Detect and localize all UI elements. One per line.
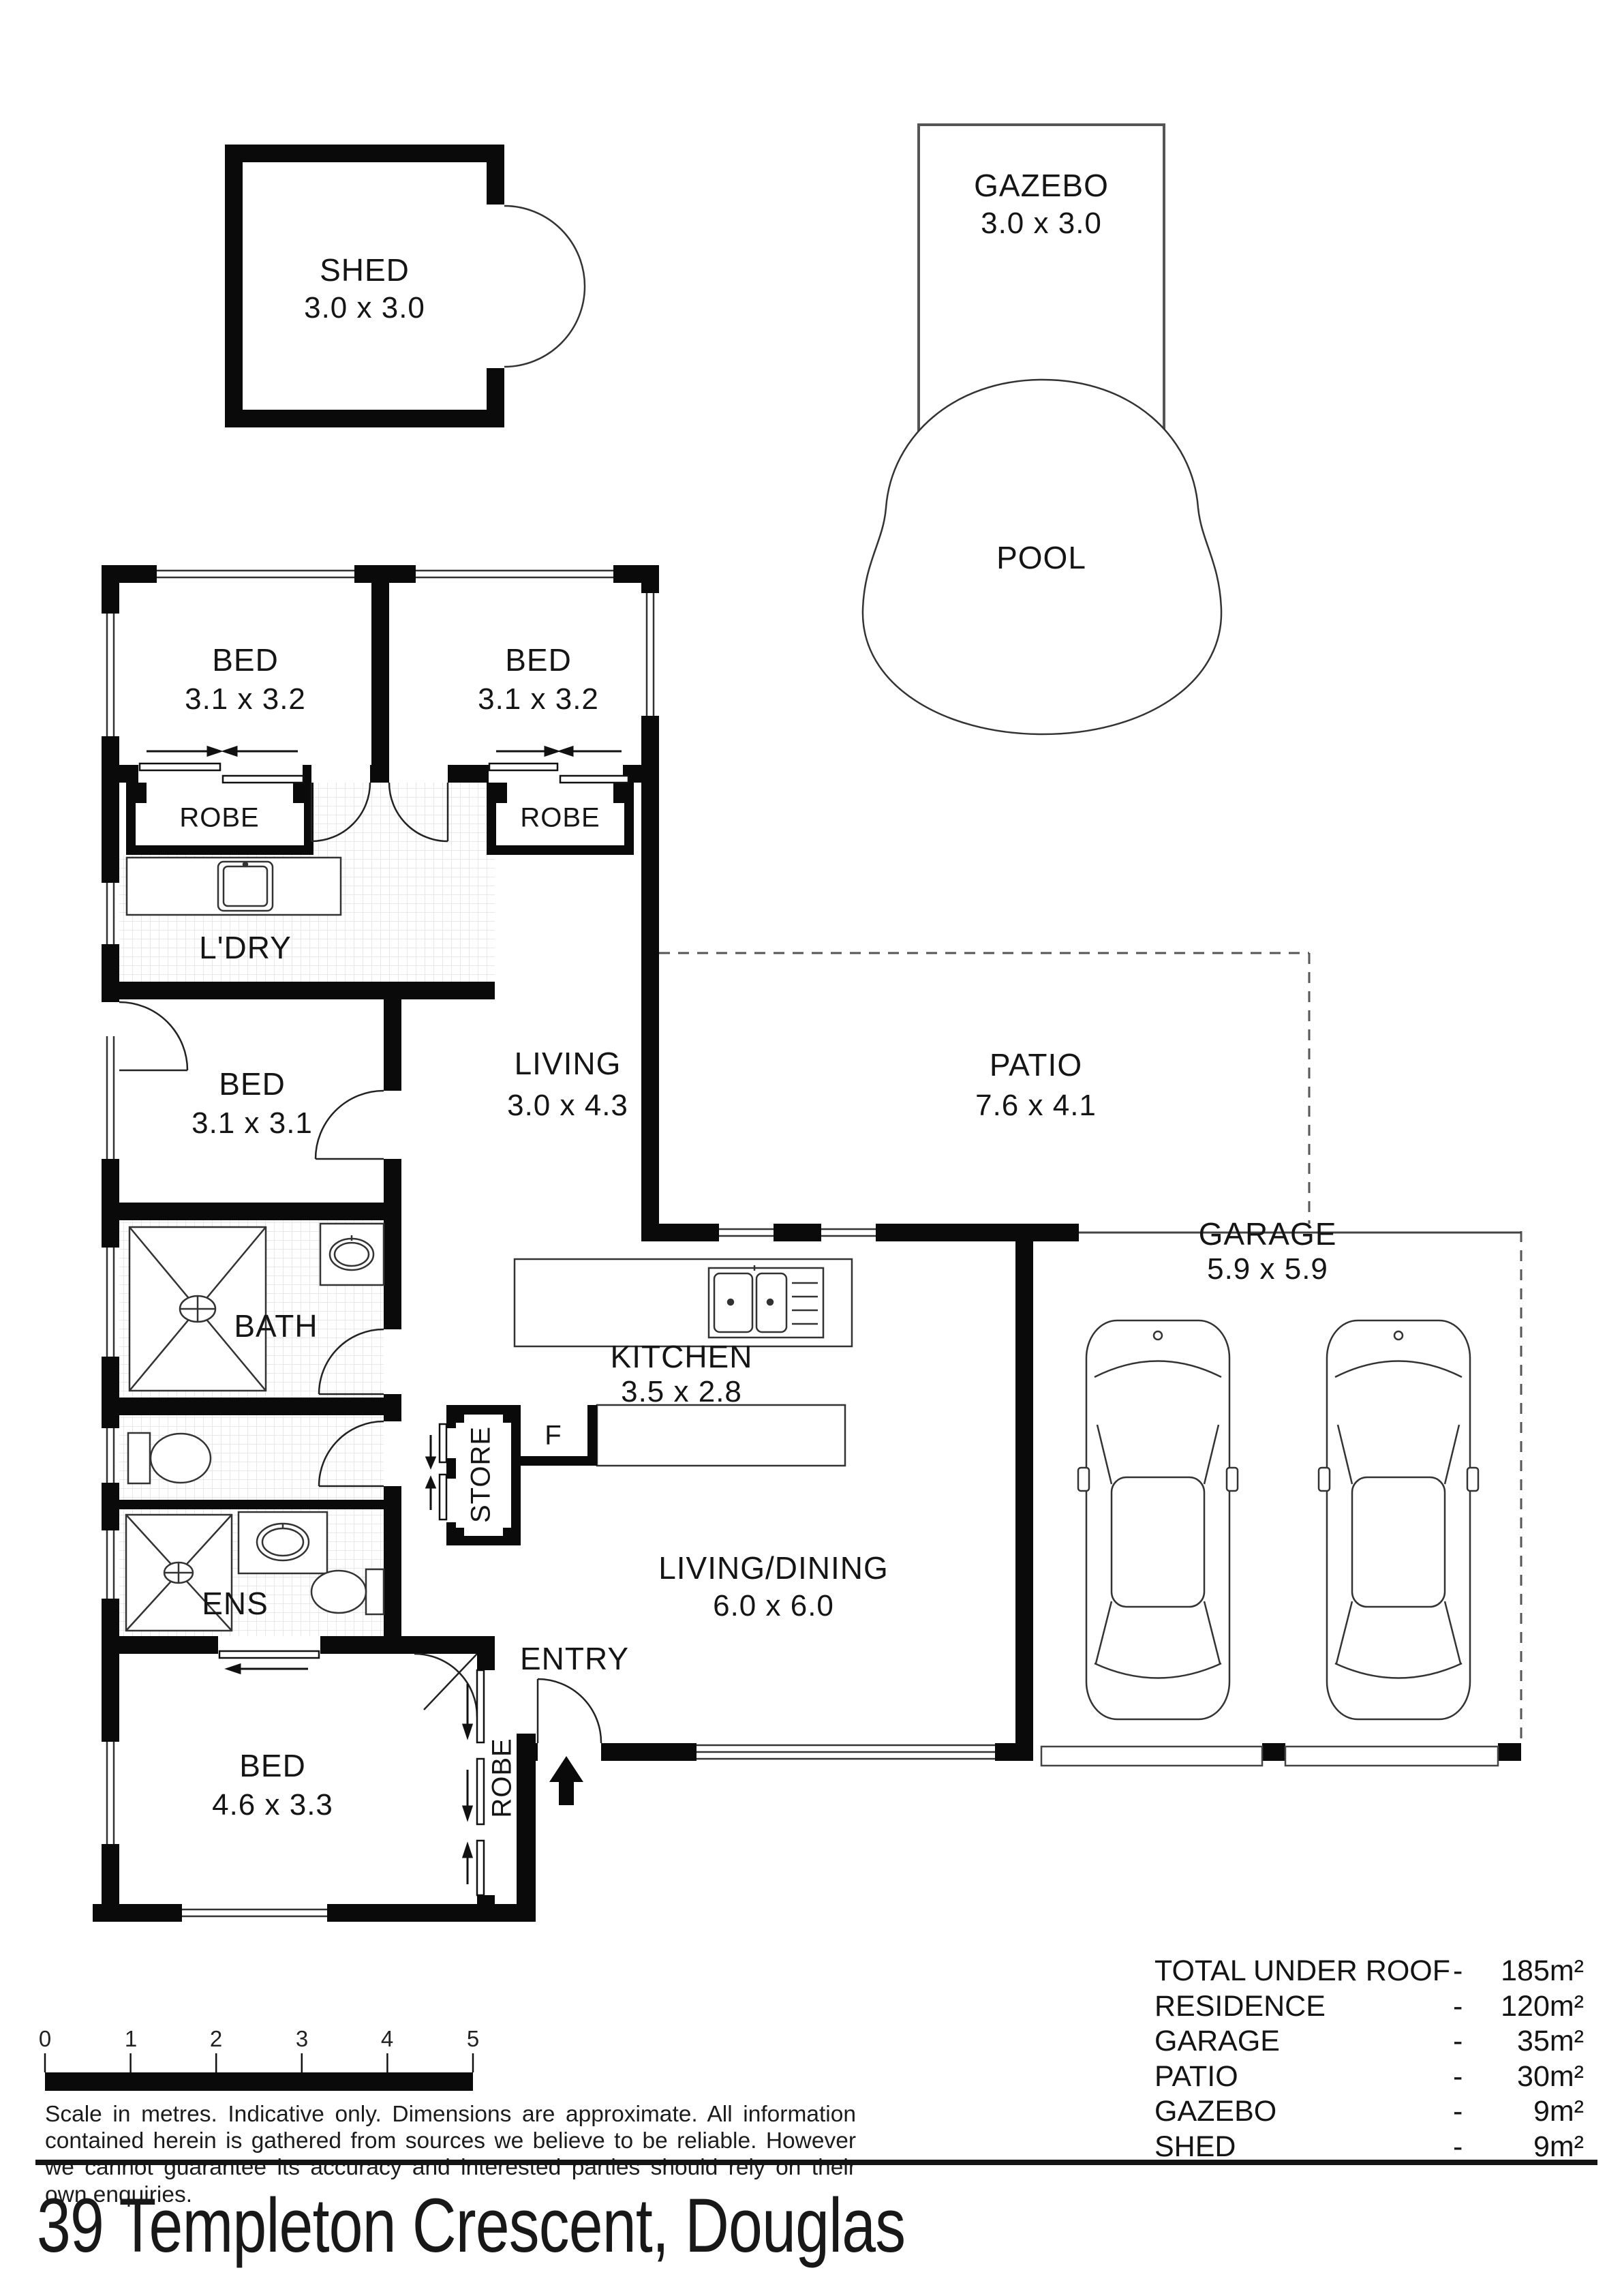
area-label: SHED [1154,2130,1236,2165]
entry-label: ENTRY [520,1640,629,1677]
scale-tick-0: 0 [39,2026,51,2052]
kitchen-bench [597,1405,845,1466]
patio-dims: 7.6 x 4.1 [975,1089,1097,1123]
area-label: TOTAL UNDER ROOF [1154,1954,1450,1989]
shed-doors [504,206,585,367]
patio-label: PATIO [990,1046,1082,1083]
area-row-garage: GARAGE - 35m² [1154,2024,1584,2059]
kitchen-label: KITCHEN [611,1338,753,1375]
area-separator: - [1453,2130,1463,2165]
area-value: 120m² [1501,1989,1584,2025]
garage-label: GARAGE [1199,1215,1337,1252]
area-label: RESIDENCE [1154,1989,1326,2025]
area-row-shed: SHED - 9m² [1154,2130,1584,2165]
area-separator: - [1453,1954,1463,1989]
area-separator: - [1453,2094,1463,2130]
floorplan-drawing [0,0,1622,2296]
kitchen-island [515,1259,852,1346]
pool-label: POOL [996,539,1086,576]
scale-tick-5: 5 [467,2026,479,2052]
area-label: GARAGE [1154,2024,1280,2059]
living-dims: 3.0 x 4.3 [507,1089,628,1123]
bed4-label: BED [239,1747,306,1784]
area-separator: - [1453,1989,1463,2025]
area-value: 9m² [1533,2094,1584,2130]
area-separator: - [1453,2024,1463,2059]
garage-dims: 5.9 x 5.9 [1207,1252,1328,1286]
area-row-residence: RESIDENCE - 120m² [1154,1989,1584,2025]
bed2-dims: 3.1 x 3.2 [478,682,599,716]
robe4-label: ROBE [487,1738,518,1817]
bed1-dims: 3.1 x 3.2 [185,682,306,716]
store-label: STORE [466,1426,497,1523]
car-1 [1078,1320,1238,1719]
shed-label: SHED [320,252,410,288]
wc-toilet [128,1433,211,1483]
area-value: 185m² [1501,1954,1584,1989]
scale-tick-4: 4 [381,2026,393,2052]
area-row-total: TOTAL UNDER ROOF - 185m² [1154,1954,1584,1989]
kitchen-dims: 3.5 x 2.8 [621,1375,742,1409]
gazebo-dims: 3.0 x 3.0 [981,207,1102,241]
living-label: LIVING [515,1045,622,1082]
bed4-dims: 4.6 x 3.3 [212,1788,333,1822]
bed3-dims: 3.1 x 3.1 [192,1106,313,1141]
bed2-label: BED [505,641,572,678]
area-value: 35m² [1517,2024,1584,2059]
area-value: 9m² [1533,2130,1584,2165]
fridge-label: F [545,1421,562,1451]
area-separator: - [1453,2059,1463,2095]
laundry-bench [127,858,341,915]
ens-label: ENS [202,1585,269,1622]
living-dining-label: LIVING/DINING [658,1550,889,1586]
shed-dims: 3.0 x 3.0 [304,291,425,325]
scale-tick-3: 3 [296,2026,308,2052]
area-row-patio: PATIO - 30m² [1154,2059,1584,2095]
car-2 [1319,1320,1478,1719]
living-dining-dims: 6.0 x 6.0 [713,1589,834,1623]
laundry-label: L'DRY [199,929,292,966]
bed3-label: BED [219,1066,286,1102]
bath-label: BATH [234,1308,318,1344]
scale-tick-2: 2 [210,2026,222,2052]
floorplan-page: SHED 3.0 x 3.0 GAZEBO 3.0 x 3.0 POOL BED… [0,0,1622,2296]
robe1-label: ROBE [179,803,259,834]
robe2-label: ROBE [520,803,600,834]
area-row-gazebo: GAZEBO - 9m² [1154,2094,1584,2130]
scale-bar [0,2045,532,2100]
page-title: 39 Templeton Crescent, Douglas [37,2186,905,2266]
gazebo-label: GAZEBO [974,167,1109,204]
scale-tick-1: 1 [125,2026,137,2052]
area-table: TOTAL UNDER ROOF - 185m² RESIDENCE - 120… [1154,1954,1584,2164]
area-value: 30m² [1517,2059,1584,2095]
entry-arrow-icon [549,1756,583,1805]
bed1-label: BED [212,641,279,678]
area-label: PATIO [1154,2059,1238,2095]
area-label: GAZEBO [1154,2094,1276,2130]
